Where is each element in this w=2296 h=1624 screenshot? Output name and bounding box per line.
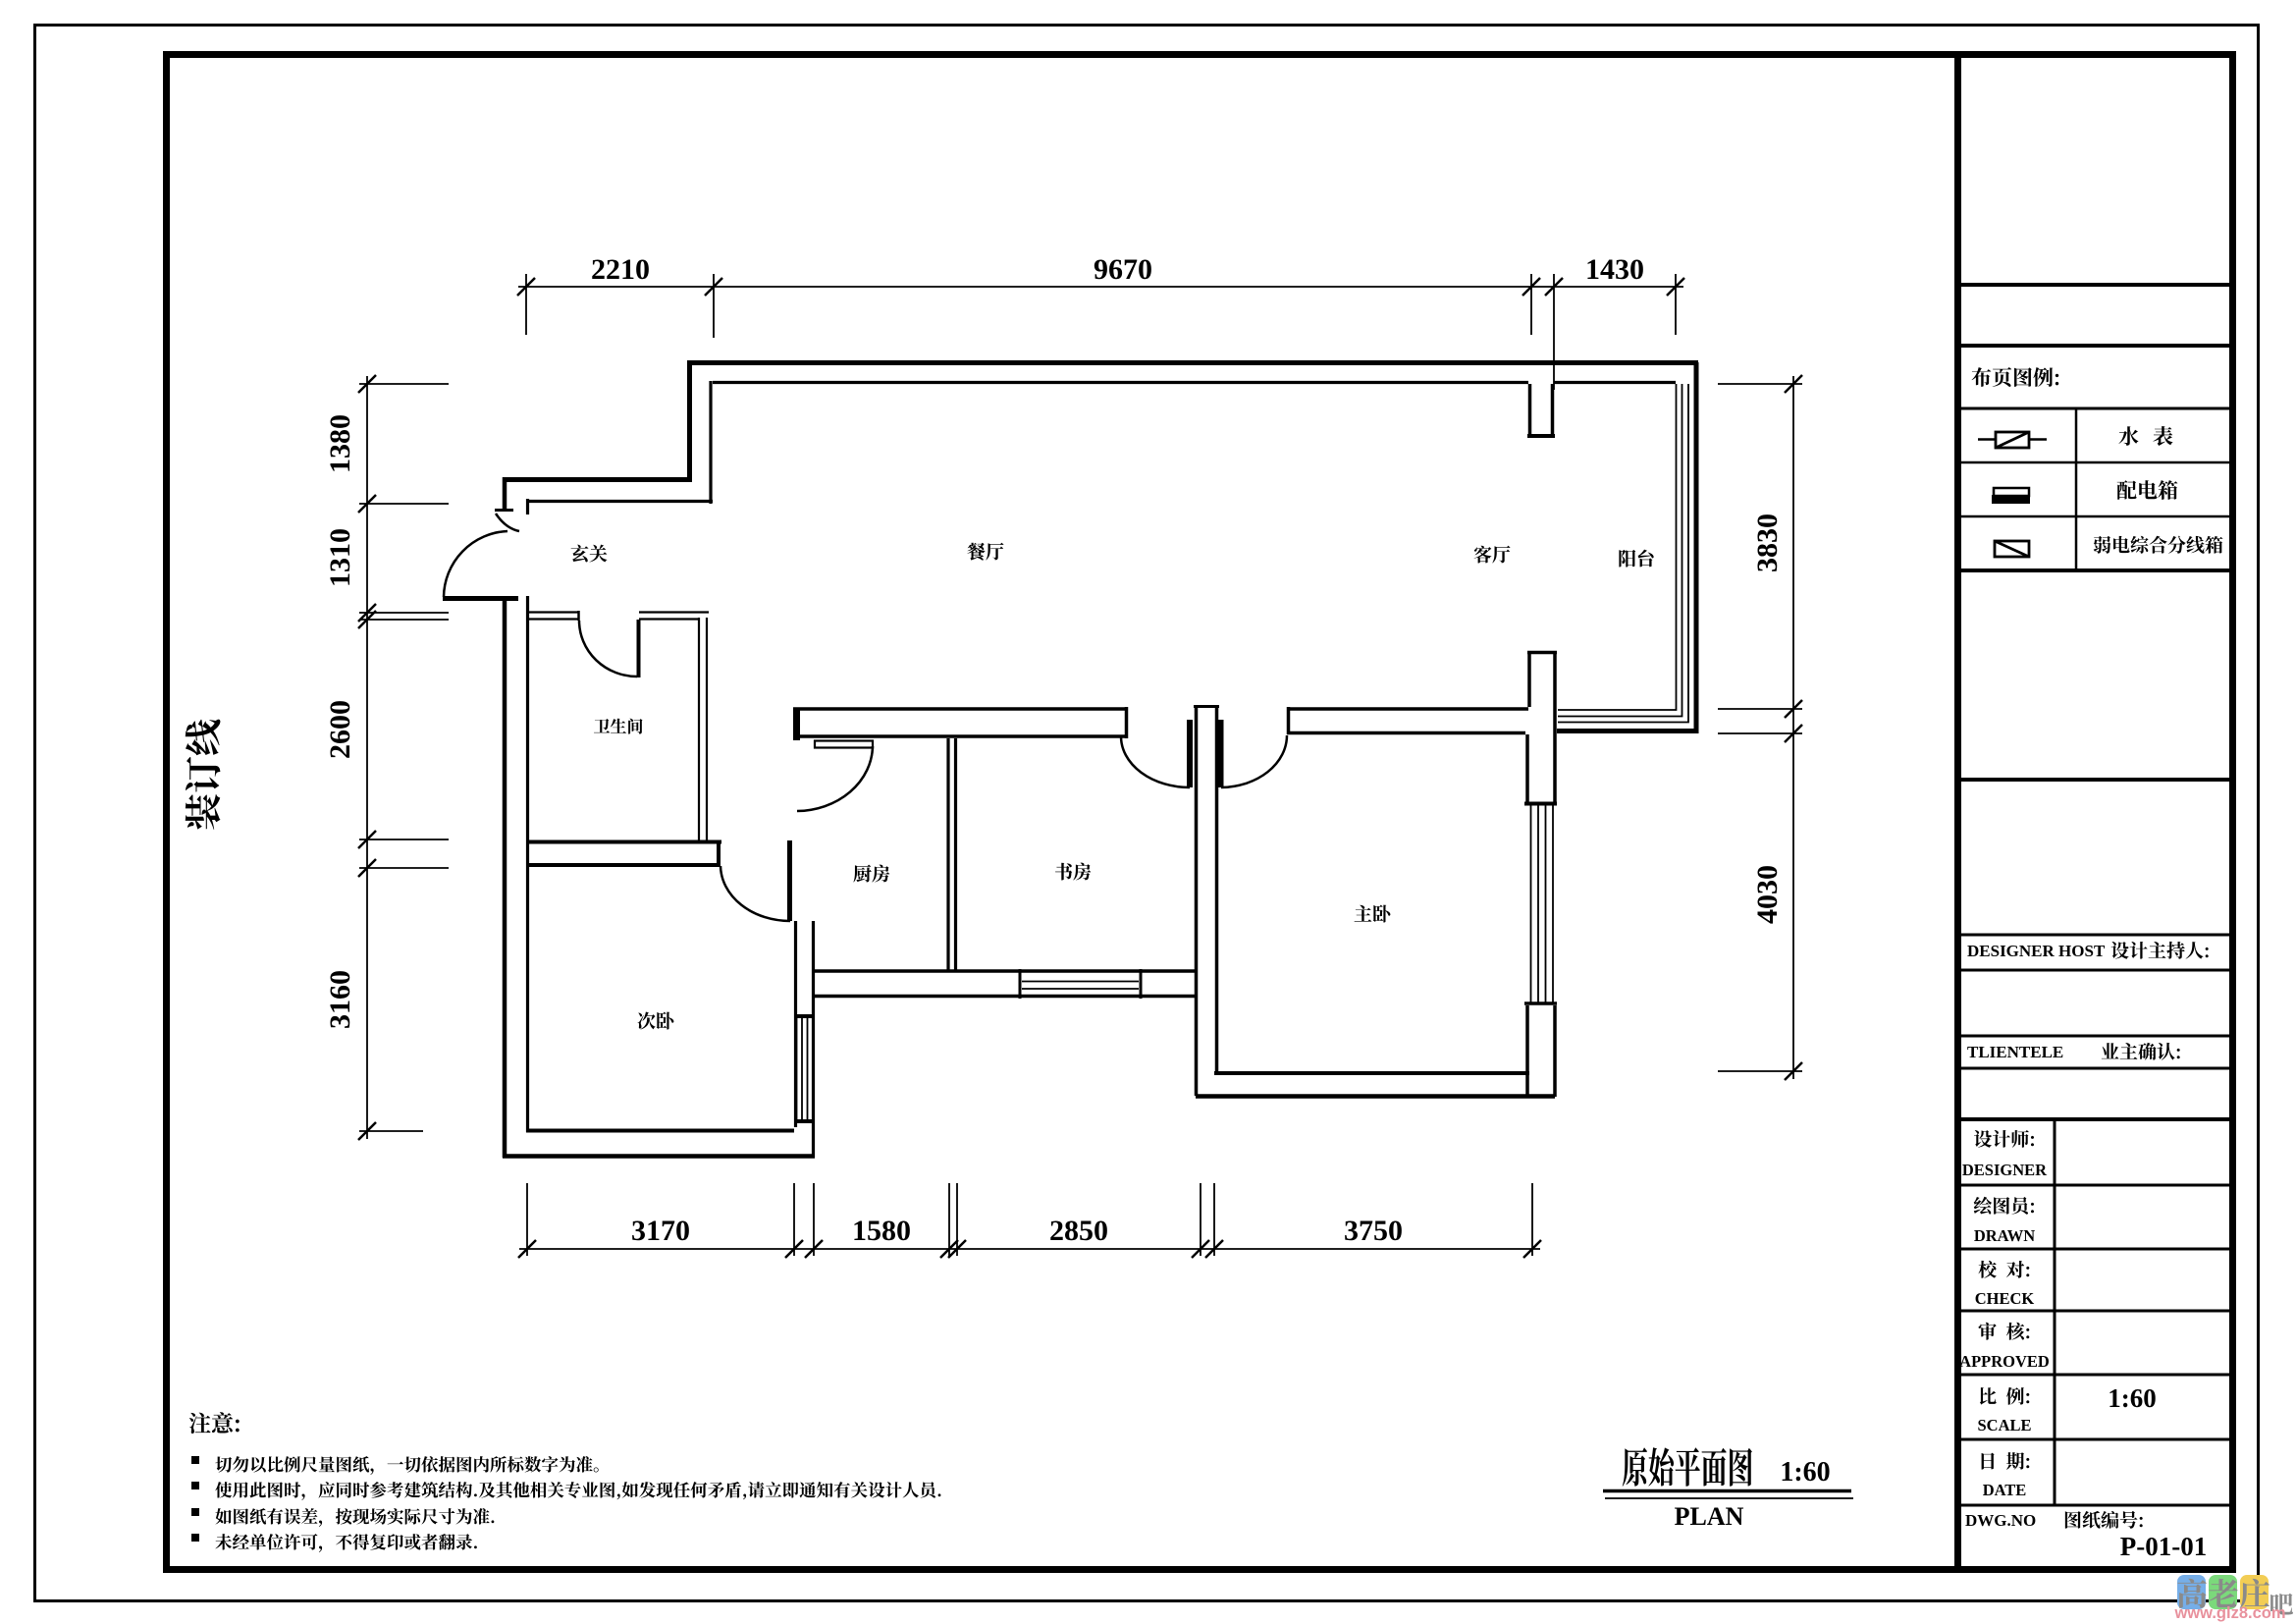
svg-text:SCALE: SCALE bbox=[1977, 1416, 2031, 1435]
svg-text:CHECK: CHECK bbox=[1975, 1289, 2035, 1308]
svg-text:DESIGNER: DESIGNER bbox=[1962, 1161, 2048, 1179]
svg-text:1310: 1310 bbox=[324, 528, 356, 587]
svg-text:1380: 1380 bbox=[324, 414, 356, 473]
svg-text:1:60: 1:60 bbox=[2108, 1383, 2157, 1413]
svg-text:DWG.NO: DWG.NO bbox=[1965, 1511, 2036, 1530]
svg-text:3750: 3750 bbox=[1344, 1215, 1403, 1247]
svg-text:3170: 3170 bbox=[631, 1215, 690, 1247]
svg-text:2600: 2600 bbox=[324, 700, 356, 759]
svg-text:3830: 3830 bbox=[1751, 514, 1784, 572]
svg-text:1:60: 1:60 bbox=[1780, 1457, 1830, 1488]
svg-text:2850: 2850 bbox=[1049, 1215, 1108, 1247]
svg-text:P-01-01: P-01-01 bbox=[2120, 1532, 2207, 1561]
svg-text:DESIGNER HOST: DESIGNER HOST bbox=[1967, 942, 2106, 960]
svg-text:1430: 1430 bbox=[1585, 253, 1644, 286]
svg-text:DRAWN: DRAWN bbox=[1974, 1226, 2035, 1245]
svg-text:9670: 9670 bbox=[1094, 253, 1152, 286]
svg-text:1580: 1580 bbox=[852, 1215, 911, 1247]
svg-text:4030: 4030 bbox=[1751, 865, 1784, 924]
svg-text:PLAN: PLAN bbox=[1675, 1502, 1744, 1531]
svg-text:DATE: DATE bbox=[1983, 1481, 2027, 1499]
svg-text:3160: 3160 bbox=[324, 970, 356, 1029]
svg-text:2210: 2210 bbox=[591, 253, 650, 286]
svg-text:www.glz8.com: www.glz8.com bbox=[2173, 1604, 2285, 1622]
svg-text:APPROVED: APPROVED bbox=[1959, 1352, 2050, 1371]
svg-text:TLIENTELE: TLIENTELE bbox=[1967, 1043, 2063, 1061]
